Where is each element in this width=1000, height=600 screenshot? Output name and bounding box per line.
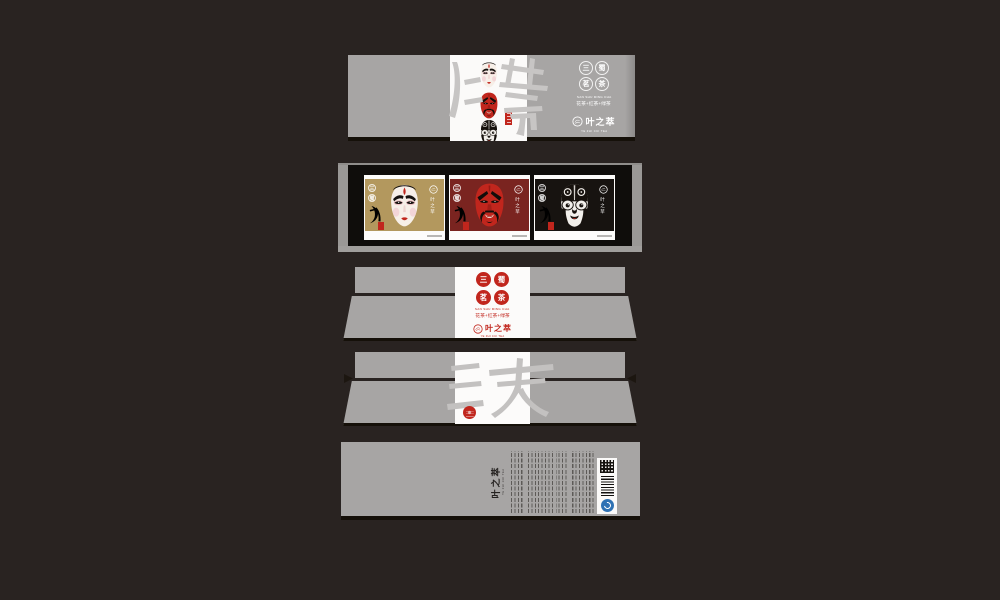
seal-char: 茶 <box>494 290 509 305</box>
tea-card-row: 三 蜀 叶之萃 三 蜀 叶之萃 <box>364 175 615 240</box>
tray-bottom-lip <box>338 246 642 252</box>
virtue-calligraphy <box>367 204 383 224</box>
product-info-text-block <box>511 451 595 513</box>
seal-char: 蜀 <box>368 194 376 202</box>
seal-char: 三 <box>538 184 546 192</box>
brand-ring-icon <box>514 185 523 194</box>
brand-name: 叶之萃 <box>485 323 512 334</box>
product-pinyin: SAN SHU MING CHA <box>577 96 611 98</box>
brand-lockup: 叶之萃 <box>572 115 615 128</box>
tray-right-wall <box>632 165 642 246</box>
seal-char: 蜀 <box>595 61 609 75</box>
product-seal-grid-red: 三 蜀 茗 茶 <box>476 272 509 305</box>
packaging-mockup-canvas: 三 蜀 茗 茶 SAN SHU MING CHA 花茶+红茶+绿茶 叶之萃 YE… <box>0 0 1000 600</box>
lid-front-label-strip: 三 蜀 茗 茶 SAN SHU MING CHA 花茶+红茶+绿茶 叶之萃 YE… <box>455 267 530 338</box>
seal-char: 三 <box>453 184 461 192</box>
brand-ring-icon <box>429 185 438 194</box>
tea-card-ren: 三 蜀 叶之萃 <box>364 175 445 240</box>
virtue-calligraphy <box>452 204 468 224</box>
card-footnote <box>512 235 527 237</box>
lid-label-strip <box>450 55 527 141</box>
seal-char: 茗 <box>579 77 593 91</box>
brand-latin: YE ZHI CUI TEA <box>481 335 505 336</box>
red-face-mask-icon <box>477 91 501 120</box>
bottom-brand-rotated: 叶之萃 YE ZHI CUI TEA <box>487 453 509 511</box>
red-stamp-seal <box>463 222 469 230</box>
card-art-red: 三 蜀 叶之萃 <box>450 179 529 231</box>
product-pinyin: SAN SHU MING CHA <box>475 308 509 310</box>
red-stamp-seal <box>548 222 554 230</box>
brand-lockup: 叶之萃 <box>473 323 512 334</box>
product-tagline: 花茶+红茶+绿茶 <box>577 102 611 107</box>
brand-name-vertical: 叶之萃 <box>600 197 605 227</box>
black-face-mask-icon <box>477 118 501 141</box>
brand-ring-icon <box>572 116 583 127</box>
product-tagline: 花茶+红茶+绿茶 <box>475 314 509 319</box>
seal-char: 蜀 <box>453 194 461 202</box>
seal-char: 三 <box>579 61 593 75</box>
tray-left-wall <box>338 165 348 246</box>
qr-code <box>600 460 614 473</box>
brand-name: 叶之萃 <box>492 466 501 499</box>
black-face-mask-icon <box>555 181 594 229</box>
brand-name-vertical: 叶之萃 <box>430 197 435 227</box>
card-footnote <box>427 235 442 237</box>
virtue-calligraphy <box>537 204 553 224</box>
brand-name: 叶之萃 <box>585 115 615 128</box>
red-stamp-seal <box>505 112 512 125</box>
seal-char: 蜀 <box>538 194 546 202</box>
white-face-mask-icon <box>477 60 501 89</box>
red-face-mask-icon <box>470 181 509 229</box>
brand-latin: YE ZHI CUI TEA <box>502 469 503 495</box>
code-strip <box>597 458 617 514</box>
panel-tray: 三 蜀 叶之萃 三 蜀 叶之萃 <box>338 163 642 252</box>
fold-notch-left <box>344 374 353 383</box>
seal-char: 蜀 <box>494 272 509 287</box>
seal-char: 茗 <box>476 290 491 305</box>
card-footnote <box>597 235 612 237</box>
tea-card-yong: 三 蜀 叶之萃 <box>534 175 615 240</box>
tea-card-yi: 三 蜀 叶之萃 <box>449 175 530 240</box>
brand-latin: YE ZHI CUI TEA <box>581 130 607 131</box>
brand-ring-icon <box>473 324 483 334</box>
card-art-gold: 三 蜀 叶之萃 <box>365 179 444 231</box>
panel-lid-top: 三 蜀 茗 茶 SAN SHU MING CHA 花茶+红茶+绿茶 叶之萃 YE… <box>348 55 635 141</box>
fold-notch-right <box>627 374 636 383</box>
panel-dark-edge <box>343 338 637 341</box>
tray-top-edge <box>338 163 642 165</box>
brand-name-vertical: 叶之萃 <box>515 197 520 227</box>
brand-ring-icon <box>599 185 608 194</box>
red-round-seal <box>463 406 476 419</box>
seal-char: 三 <box>368 184 376 192</box>
lid-brand-block: 三 蜀 茗 茶 SAN SHU MING CHA 花茶+红茶+绿茶 叶之萃 YE… <box>558 61 630 133</box>
card-art-black: 三 蜀 叶之萃 <box>535 179 614 231</box>
panel-box-bottom: 叶之萃 YE ZHI CUI TEA <box>341 442 640 520</box>
seal-char: 茶 <box>595 77 609 91</box>
product-seal-grid: 三 蜀 茗 茶 <box>579 61 609 91</box>
qs-certification-icon <box>601 499 614 512</box>
white-face-mask-icon <box>385 181 424 229</box>
barcode <box>601 476 614 496</box>
red-stamp-seal <box>378 222 384 230</box>
seal-char: 三 <box>476 272 491 287</box>
